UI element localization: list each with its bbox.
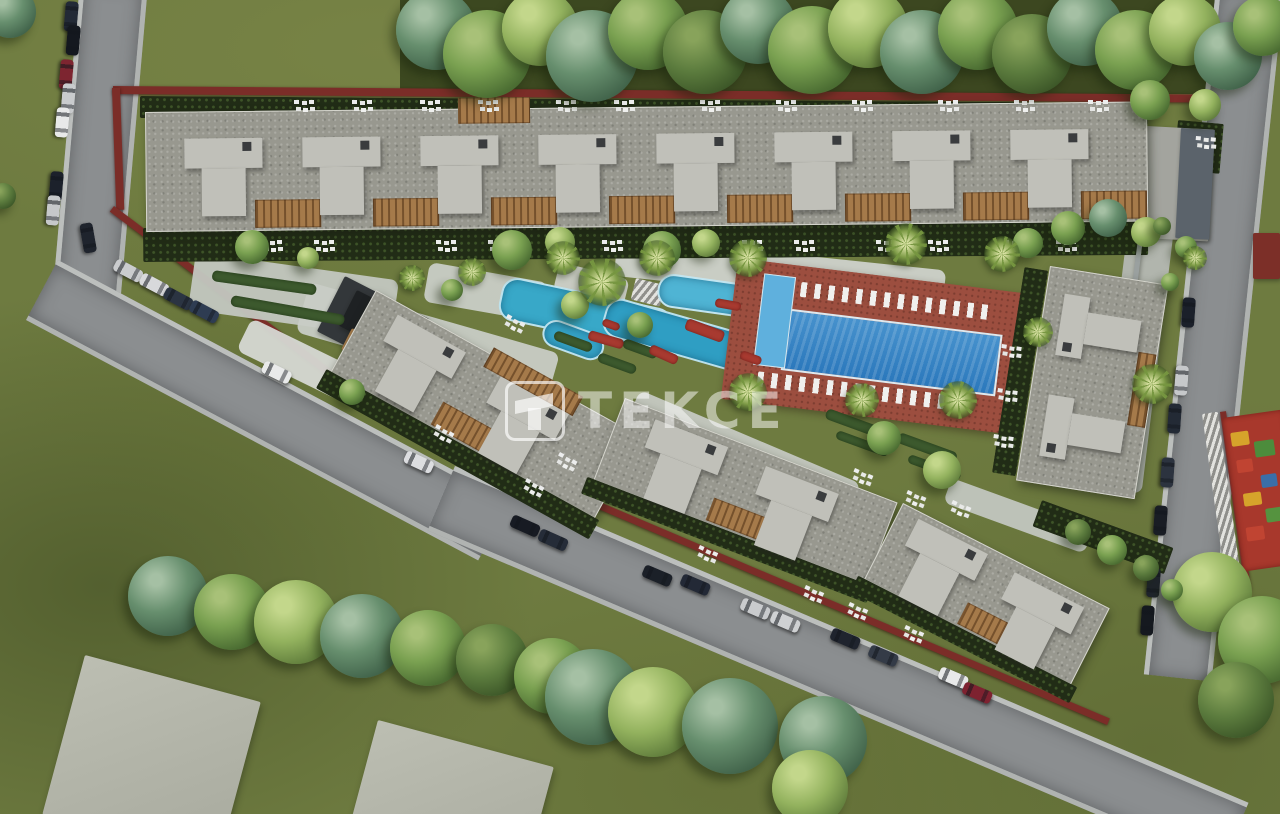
patio-furniture xyxy=(904,625,910,631)
tree xyxy=(1133,555,1159,581)
apartment-building-roof xyxy=(145,102,1148,232)
hedge xyxy=(597,352,638,375)
roof-structure xyxy=(1010,129,1089,208)
watermark: TEKCE xyxy=(505,381,789,441)
patio-furniture xyxy=(938,100,943,104)
tree xyxy=(627,312,653,338)
play-equipment xyxy=(1246,525,1266,541)
roof-structure xyxy=(892,130,971,209)
chimney xyxy=(1062,342,1072,352)
patio-furniture xyxy=(700,100,705,104)
roof-structure-part xyxy=(792,162,837,210)
roof-structure xyxy=(656,133,735,212)
tree xyxy=(682,678,778,774)
palm-tree xyxy=(1023,317,1053,347)
tree xyxy=(1189,89,1221,121)
parked-car xyxy=(1181,297,1196,328)
chimney xyxy=(242,142,251,151)
roof-structure-part xyxy=(1028,159,1073,207)
palm-tree xyxy=(399,265,425,291)
roof-structure-part xyxy=(320,167,365,215)
tree xyxy=(692,229,720,257)
neighbor-red-structure xyxy=(1253,233,1280,279)
patio-furniture xyxy=(876,240,881,244)
patio-furniture xyxy=(314,240,319,244)
roof-structure-part xyxy=(438,165,483,213)
tree xyxy=(1051,211,1085,245)
patio-furniture xyxy=(928,240,933,244)
tree xyxy=(339,379,365,405)
patio-furniture xyxy=(436,240,441,244)
tree xyxy=(1153,217,1171,235)
chimney xyxy=(950,134,959,143)
play-equipment xyxy=(1236,458,1254,473)
patio-furniture xyxy=(776,100,781,104)
chimney xyxy=(832,136,841,145)
watermark-text: TEKCE xyxy=(578,384,789,438)
patio-furniture xyxy=(1001,344,1007,349)
patio-furniture xyxy=(853,468,859,474)
play-equipment xyxy=(1265,506,1280,522)
patio-furniture xyxy=(602,240,607,244)
parked-car xyxy=(65,25,81,56)
parked-car xyxy=(1140,605,1155,636)
chimney xyxy=(1046,443,1056,453)
parked-car xyxy=(54,107,70,138)
tree xyxy=(390,610,466,686)
neighbor-building-roof xyxy=(342,720,554,814)
roof-structure-part xyxy=(910,161,955,209)
tree xyxy=(0,0,36,38)
annex-roof-dark-section xyxy=(1175,128,1215,240)
tree xyxy=(1065,519,1091,545)
patio-furniture xyxy=(478,100,483,104)
roof-structure-part xyxy=(674,163,719,211)
play-equipment xyxy=(1230,431,1250,447)
patio-furniture xyxy=(794,240,799,244)
neighbor-building-roof xyxy=(42,655,261,814)
tree xyxy=(1198,662,1274,738)
roof-structure-part xyxy=(556,164,601,212)
play-equipment xyxy=(1254,439,1276,458)
roof-structure xyxy=(1039,394,1128,468)
patio-furniture xyxy=(294,100,299,104)
patio-furniture xyxy=(420,100,425,104)
patio-furniture xyxy=(997,388,1003,393)
patio-furniture xyxy=(848,602,854,608)
patio-furniture xyxy=(1196,136,1201,140)
patio-furniture xyxy=(1088,100,1093,104)
aerial-site-plan-render: TEKCE xyxy=(0,0,1280,814)
play-equipment xyxy=(1243,491,1263,506)
chimney xyxy=(360,141,369,150)
patio-furniture xyxy=(556,100,561,104)
tree xyxy=(1130,80,1170,120)
tree xyxy=(492,230,532,270)
palm-tree xyxy=(578,258,626,306)
tree xyxy=(923,451,961,489)
palm-tree xyxy=(729,239,767,277)
chimney xyxy=(596,138,605,147)
tree xyxy=(235,230,269,264)
palm-tree xyxy=(845,383,879,417)
roof-structure xyxy=(774,132,853,211)
watermark-logo-glyph xyxy=(528,408,541,430)
patio-furniture xyxy=(614,100,619,104)
tree xyxy=(441,279,463,301)
chimney xyxy=(1068,133,1077,142)
terrace-deck xyxy=(458,97,530,124)
roof-structure xyxy=(420,135,499,214)
watermark-logo xyxy=(505,381,565,441)
tree xyxy=(1097,535,1127,565)
roof-structure xyxy=(538,134,617,213)
palm-tree xyxy=(984,236,1020,272)
patio-furniture xyxy=(906,490,912,496)
palm-tree xyxy=(1183,246,1207,270)
play-equipment xyxy=(1260,473,1278,488)
palm-tree xyxy=(639,240,675,276)
tree xyxy=(867,421,901,455)
parked-car xyxy=(1160,457,1175,488)
palm-tree xyxy=(885,223,927,265)
palm-tree xyxy=(546,241,580,275)
tree xyxy=(1161,579,1183,601)
chimney xyxy=(714,137,723,146)
roof-structure-part xyxy=(1067,413,1125,453)
patio-furniture xyxy=(852,100,857,104)
parked-car xyxy=(1174,365,1189,396)
tree xyxy=(1161,273,1179,291)
chimney xyxy=(478,139,487,148)
patio-furniture xyxy=(352,100,357,104)
palm-tree xyxy=(458,258,486,286)
roof-structure xyxy=(184,138,263,217)
tree xyxy=(297,247,319,269)
tree xyxy=(0,183,16,209)
palm-tree xyxy=(939,381,977,419)
patio-furniture xyxy=(1014,100,1019,104)
tree xyxy=(1089,199,1127,237)
palm-tree xyxy=(1132,364,1172,404)
parked-car xyxy=(45,195,61,226)
roof-structure-part xyxy=(1083,313,1141,353)
roof-structure-part xyxy=(202,168,247,216)
roof-structure xyxy=(1055,294,1144,368)
patio-furniture xyxy=(993,434,999,439)
roof-structure xyxy=(302,137,381,216)
parked-car xyxy=(1153,505,1168,536)
parked-car xyxy=(1167,403,1182,434)
